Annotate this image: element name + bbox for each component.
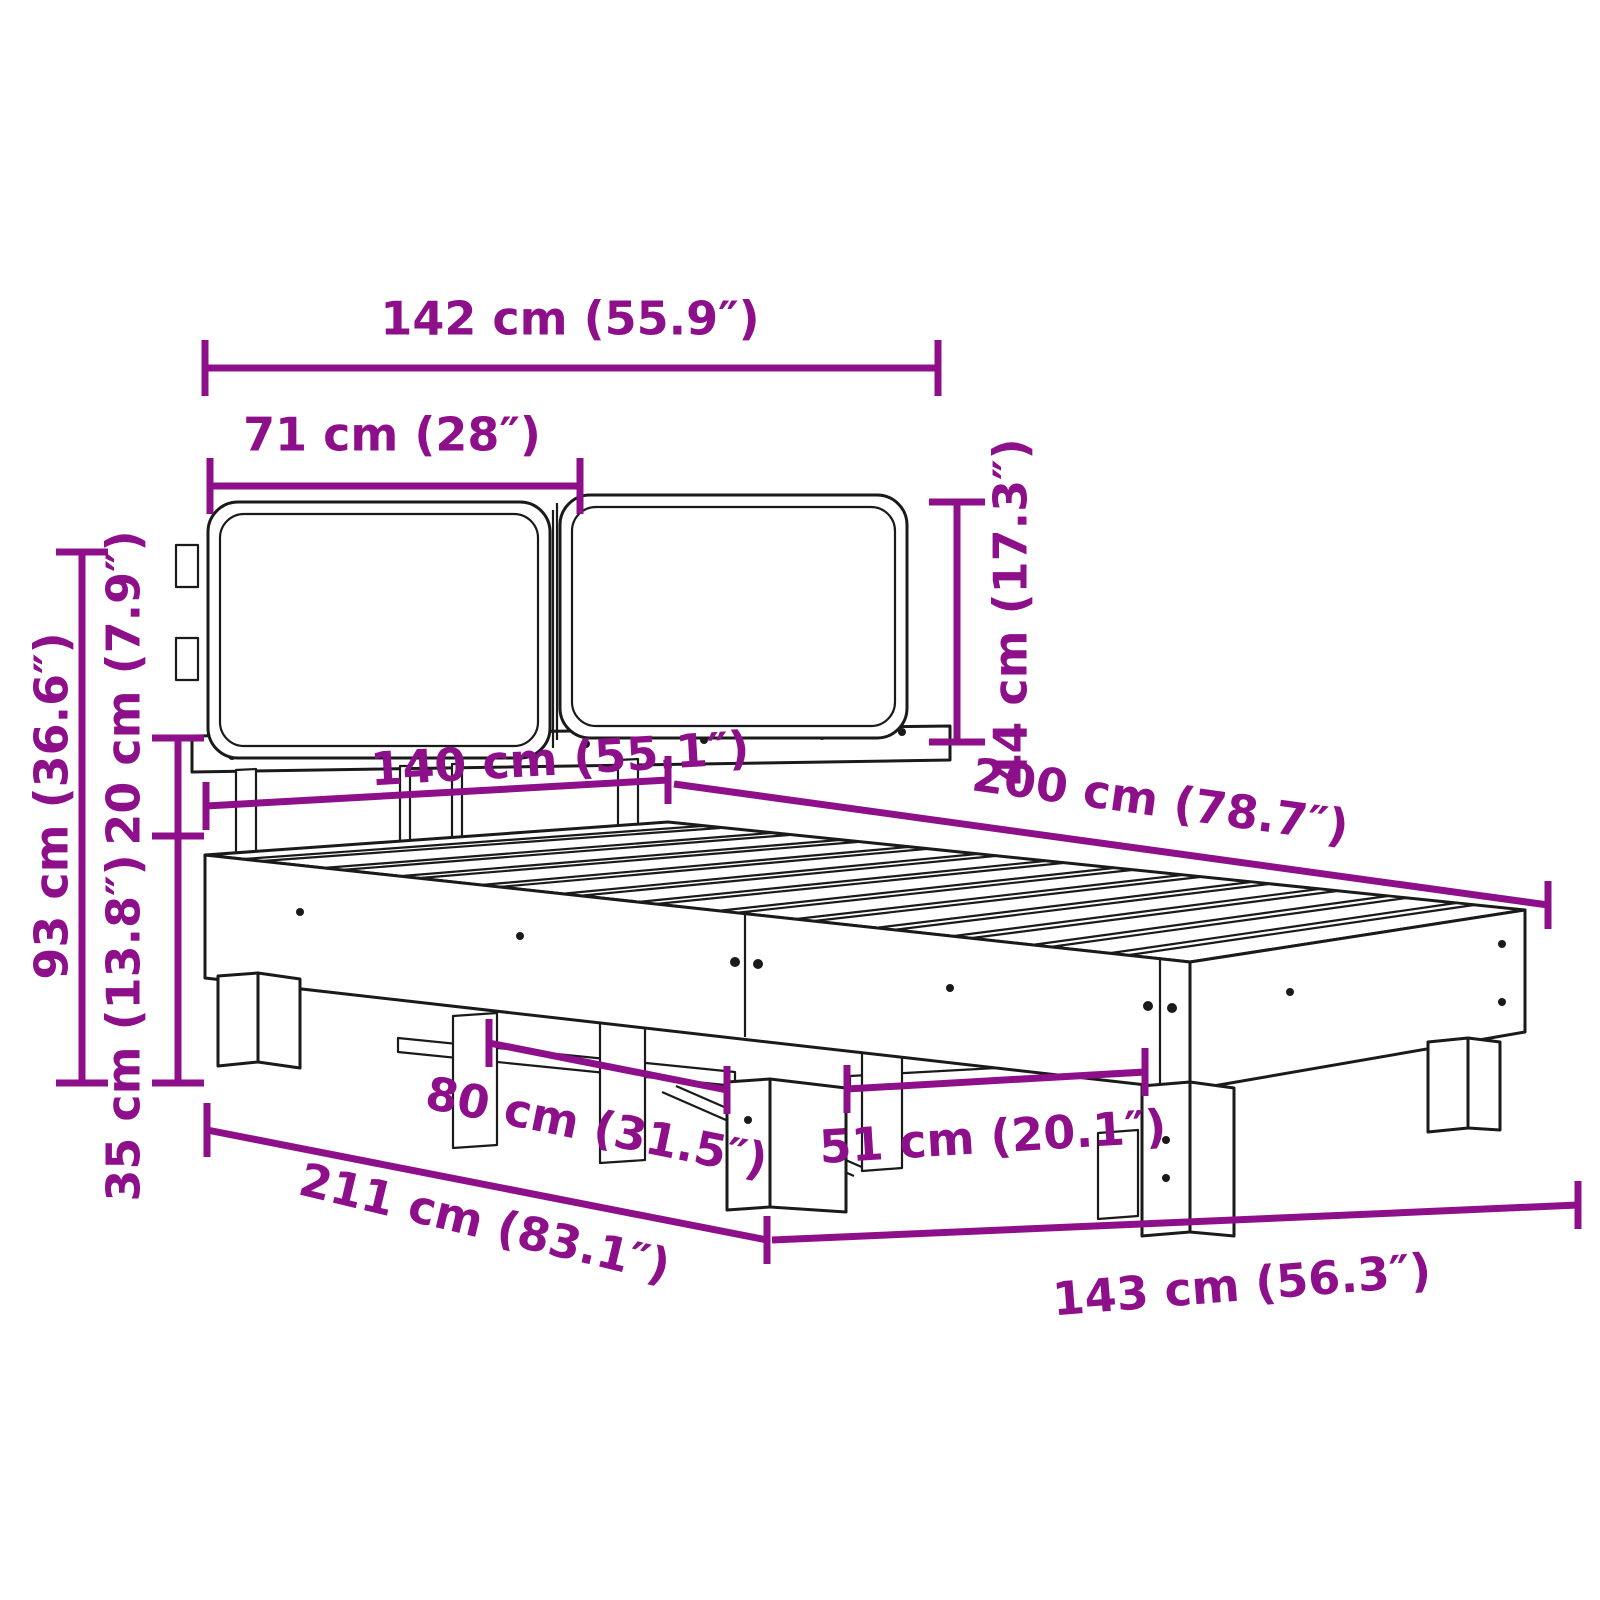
dim-label-leg-height: 35 cm (13.8″) [97,854,151,1201]
dim-label-frame-height: 20 cm (7.9″) [97,530,151,845]
frame-screw [296,908,304,916]
leg-foot-near-side [1190,1082,1234,1236]
headboard [176,495,950,880]
dim-label-headboard-width: 142 cm (55.9″) [380,292,759,346]
dim-label-total-length: 211 cm (83.1″) [294,1152,675,1293]
leg-head-side [258,973,300,1068]
leg-screw [744,1116,752,1124]
dim-headboard-width: 142 cm (55.9″) [205,292,938,397]
dim-label-total-height: 93 cm (36.6″) [25,632,79,979]
frame-screw [1167,1003,1177,1013]
frame-screw [1498,998,1506,1006]
dimension-diagram: 142 cm (55.9″) 71 cm (28″) 44 cm (17.3″)… [0,0,1600,1600]
cushion-right-inner [572,507,895,726]
frame-screw [753,959,763,969]
frame-screw [730,957,740,967]
bed-frame-diagram-canvas: 142 cm (55.9″) 71 cm (28″) 44 cm (17.3″)… [0,0,1600,1600]
frame-screw [946,984,954,992]
leg-foot-far-side [1468,1038,1500,1130]
dim-total-height: 93 cm (36.6″) [25,552,109,1083]
leg-head-front [218,973,258,1066]
dim-label-base-width: 143 cm (56.3″) [1051,1243,1433,1327]
frame-screw [516,932,524,940]
cushion-left-inner [220,514,538,746]
frame-screw [1498,940,1506,948]
dim-frame-and-leg-height: 20 cm (7.9″) 35 cm (13.8″) [97,530,205,1201]
headboard-tab-bottom [176,638,198,680]
leg-foot-far-front [1428,1038,1468,1132]
dim-cushion-width: 71 cm (28″) [210,408,580,515]
dim-label-cushion-height: 44 cm (17.3″) [984,438,1038,785]
frame-screw [1143,1001,1153,1011]
headboard-tab-top [176,545,198,587]
leg-screw [1162,1174,1170,1182]
frame-screw [1286,988,1294,996]
dim-label-bed-length: 200 cm (78.7″) [969,747,1352,853]
dim-label-cushion-width: 71 cm (28″) [243,408,541,462]
